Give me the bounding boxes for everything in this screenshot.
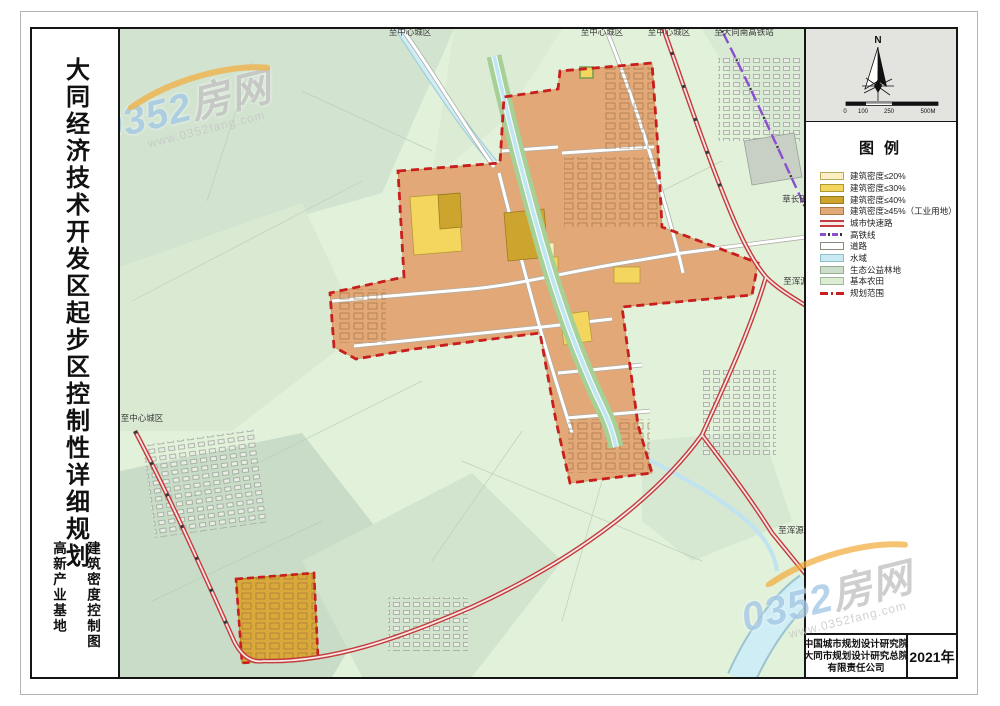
subtitle-group: 高新产业基地 建筑密度控制图 — [32, 541, 118, 650]
scale-label: 500M — [920, 109, 935, 115]
legend-item: 规划范围 — [820, 289, 956, 298]
plan-frame: 大同经济技术开发区起步区控制性详细规划 高新产业基地 建筑密度控制图 — [30, 27, 958, 679]
scale-label: 0 — [843, 109, 847, 115]
legend-item: 建筑密度≤40% — [820, 195, 956, 204]
legend-swatch-area-icon — [820, 172, 844, 180]
subtitle-map-type: 建筑密度控制图 — [82, 541, 102, 650]
legend-label: 规划范围 — [850, 287, 884, 299]
legend-label: 建筑密度≤30% — [850, 182, 906, 194]
legend-swatch-boundary-icon — [820, 292, 844, 295]
scale-bar — [846, 102, 938, 105]
legend-label: 基本农田 — [850, 275, 884, 287]
legend-label: 高铁线 — [850, 229, 876, 241]
map-label: 至浑源 — [778, 525, 804, 535]
attribution-line: 中国城市规划设计研究院 — [804, 639, 909, 651]
plan-sheet: 大同经济技术开发区起步区控制性详细规划 高新产业基地 建筑密度控制图 — [0, 0, 1000, 706]
page-title: 大同经济技术开发区起步区控制性详细规划 — [58, 57, 93, 570]
legend-item: 建筑密度≤30% — [820, 184, 956, 193]
legend-item: 生态公益林地 — [820, 266, 956, 275]
attribution-line: 大同市规划设计研究总院 — [804, 651, 909, 663]
legend-label: 道路 — [850, 240, 867, 252]
map: 至中心城区至中心城区至中心城区至大同南高铁站至中心城区草长田至浑源至浑源 035… — [120, 29, 806, 677]
map-label: 至大同南高铁站 — [714, 29, 774, 37]
legend-item: 基本农田 — [820, 277, 956, 286]
legend-label: 建筑密度≤20% — [850, 170, 906, 182]
attribution-org: 中国城市规划设计研究院 大同市规划设计研究总院 有限责任公司 — [806, 635, 908, 679]
legend-item: 高铁线 — [820, 230, 956, 239]
map-label: 至浑源 — [783, 276, 806, 286]
legend-label: 城市快速路 — [850, 217, 893, 229]
title-sidebar: 大同经济技术开发区起步区控制性详细规划 高新产业基地 建筑密度控制图 — [32, 29, 120, 677]
legend-swatch-area-icon — [820, 196, 844, 204]
legend-label: 建筑密度≤40% — [850, 194, 906, 206]
legend-item: 道路 — [820, 242, 956, 251]
svg-text:N: N — [874, 35, 881, 46]
legend-title: 图例 — [812, 137, 956, 158]
legend-swatch-area-icon — [820, 266, 844, 274]
legend-item: 建筑密度≥45%（工业用地） — [820, 207, 956, 216]
compass-box: N 0100250500M — [806, 29, 956, 122]
attribution-year: 2021年 — [908, 635, 956, 679]
rail-station-area — [744, 133, 802, 185]
attribution: 中国城市规划设计研究院 大同市规划设计研究总院 有限责任公司 2021年 — [806, 633, 956, 679]
legend-swatch-area-icon — [820, 207, 844, 215]
right-panel: N 0100250500M — [806, 29, 956, 677]
legend-swatch-area-icon — [820, 254, 844, 262]
map-svg: 至中心城区至中心城区至中心城区至大同南高铁站至中心城区草长田至浑源至浑源 — [120, 29, 806, 677]
legend-label: 生态公益林地 — [850, 264, 901, 276]
legend-swatch-area-icon — [820, 184, 844, 192]
legend-swatch-road-red-icon — [820, 220, 844, 227]
subtitle-base: 高新产业基地 — [48, 541, 68, 650]
legend-item: 城市快速路 — [820, 219, 956, 228]
legend-swatch-area-icon — [820, 277, 844, 285]
map-label: 至中心城区 — [648, 29, 691, 37]
map-label: 至中心城区 — [389, 29, 432, 37]
legend-label: 水域 — [850, 252, 867, 264]
map-label: 至中心城区 — [581, 29, 624, 37]
southwest-parcel — [236, 573, 318, 663]
legend-item: 水域 — [820, 254, 956, 263]
legend-swatch-road-icon — [820, 242, 844, 250]
legend-swatch-rail-icon — [820, 233, 844, 236]
legend-items: 建筑密度≤20%建筑密度≤30%建筑密度≤40%建筑密度≥45%（工业用地）城市… — [806, 172, 956, 297]
attribution-line: 有限责任公司 — [827, 663, 884, 675]
map-label: 至中心城区 — [121, 413, 164, 423]
north-arrow-icon: N 0100250500M — [806, 29, 956, 121]
scale-label: 100 — [858, 109, 869, 115]
legend: 图例 建筑密度≤20%建筑密度≤30%建筑密度≤40%建筑密度≥45%（工业用地… — [806, 129, 956, 301]
scale-label: 250 — [884, 109, 895, 115]
legend-label: 建筑密度≥45%（工业用地） — [850, 205, 957, 217]
map-label: 草长田 — [782, 194, 806, 204]
legend-item: 建筑密度≤20% — [820, 172, 956, 181]
